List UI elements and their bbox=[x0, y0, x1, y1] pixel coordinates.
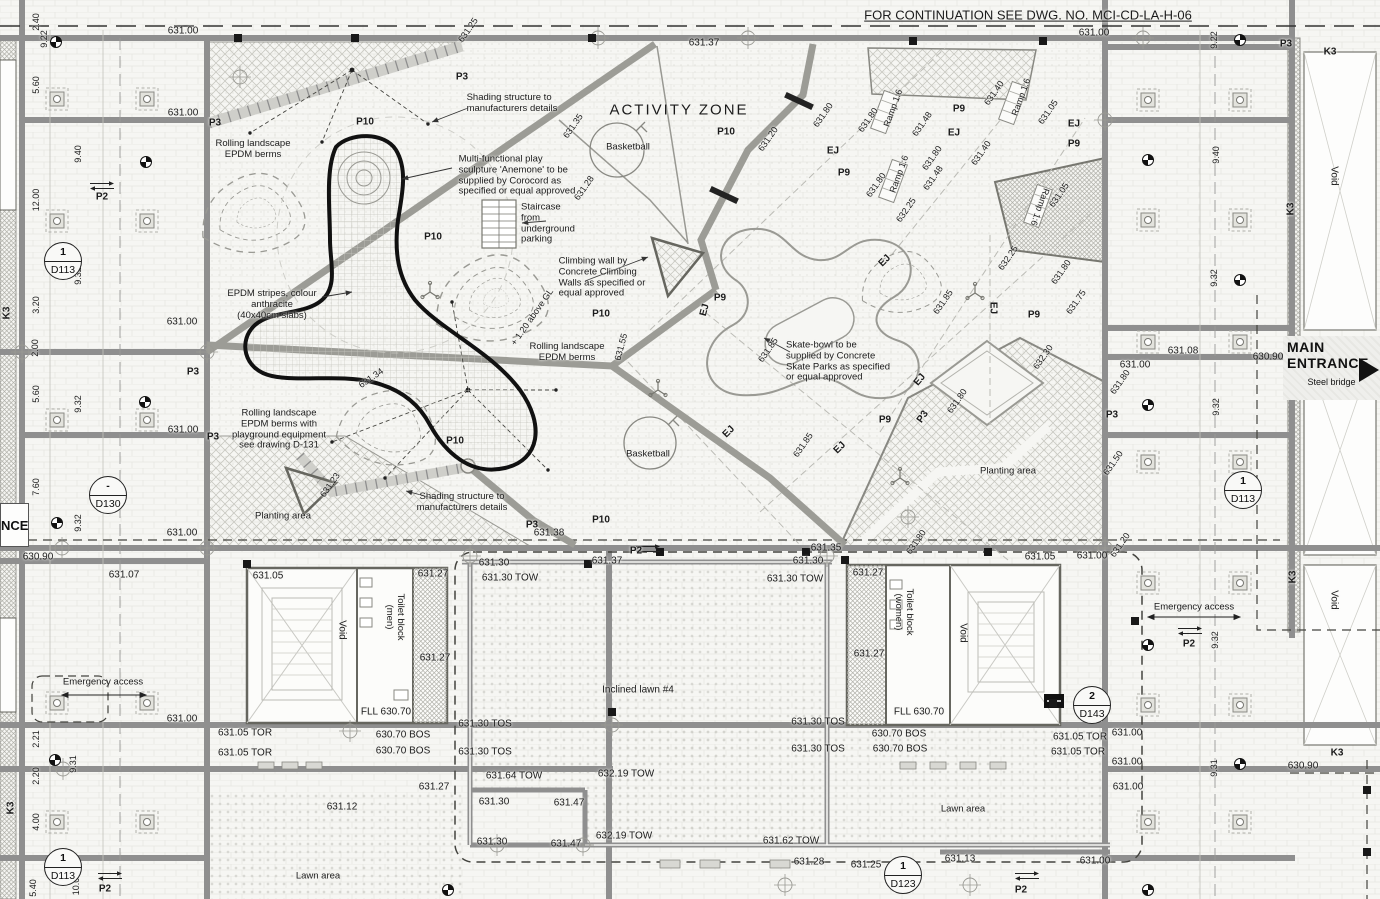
plan-linework bbox=[0, 0, 1380, 899]
entrance-arrow-icon bbox=[1359, 358, 1379, 382]
toilet-block-women-building bbox=[847, 565, 1064, 725]
west-entrance-label-clipped: NCE bbox=[0, 503, 29, 547]
toilet-block-men-building bbox=[247, 568, 447, 723]
entrance-clip-text: NCE bbox=[1, 518, 28, 533]
staircase-icon bbox=[482, 200, 516, 248]
main-entrance-note: MAIN ENTRANCE Steel bridge bbox=[1283, 336, 1380, 400]
site-plan-drawing: FOR CONTINUATION SEE DWG. NO. MCI-CD-LA-… bbox=[0, 0, 1380, 899]
